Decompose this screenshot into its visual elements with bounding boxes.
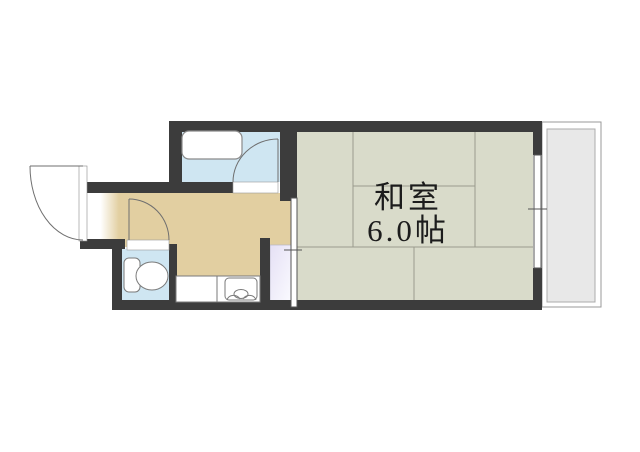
balcony-window-icon <box>534 155 541 268</box>
bathroom-doorway <box>233 182 278 193</box>
wall-top <box>170 121 542 132</box>
kitchen-floor <box>176 247 260 277</box>
balcony-floor <box>547 129 595 302</box>
tatami-room-floor <box>297 131 533 300</box>
storage-nook-floor <box>270 245 292 302</box>
wall-toilet-left <box>112 249 122 306</box>
wall-right-bottom <box>533 268 542 310</box>
wall-right-top <box>533 121 542 155</box>
sink-drain-icon <box>234 290 248 299</box>
floor-plan-drawing <box>0 0 640 452</box>
wall-entrance-top <box>82 182 233 193</box>
kitchen-counter-icon <box>176 276 260 302</box>
entrance-doorway <box>79 166 87 241</box>
entrance-door-swing-icon <box>30 166 83 240</box>
toilet-doorway <box>127 240 169 250</box>
bathtub-icon <box>182 131 242 159</box>
wall-bathroom-right <box>280 121 297 201</box>
toilet-bowl-icon <box>136 262 168 290</box>
tatami-sliding-door-icon <box>291 198 297 307</box>
floor-plan: 和室 6.0帖 <box>0 0 640 452</box>
wall-kitchen-right <box>260 238 270 305</box>
